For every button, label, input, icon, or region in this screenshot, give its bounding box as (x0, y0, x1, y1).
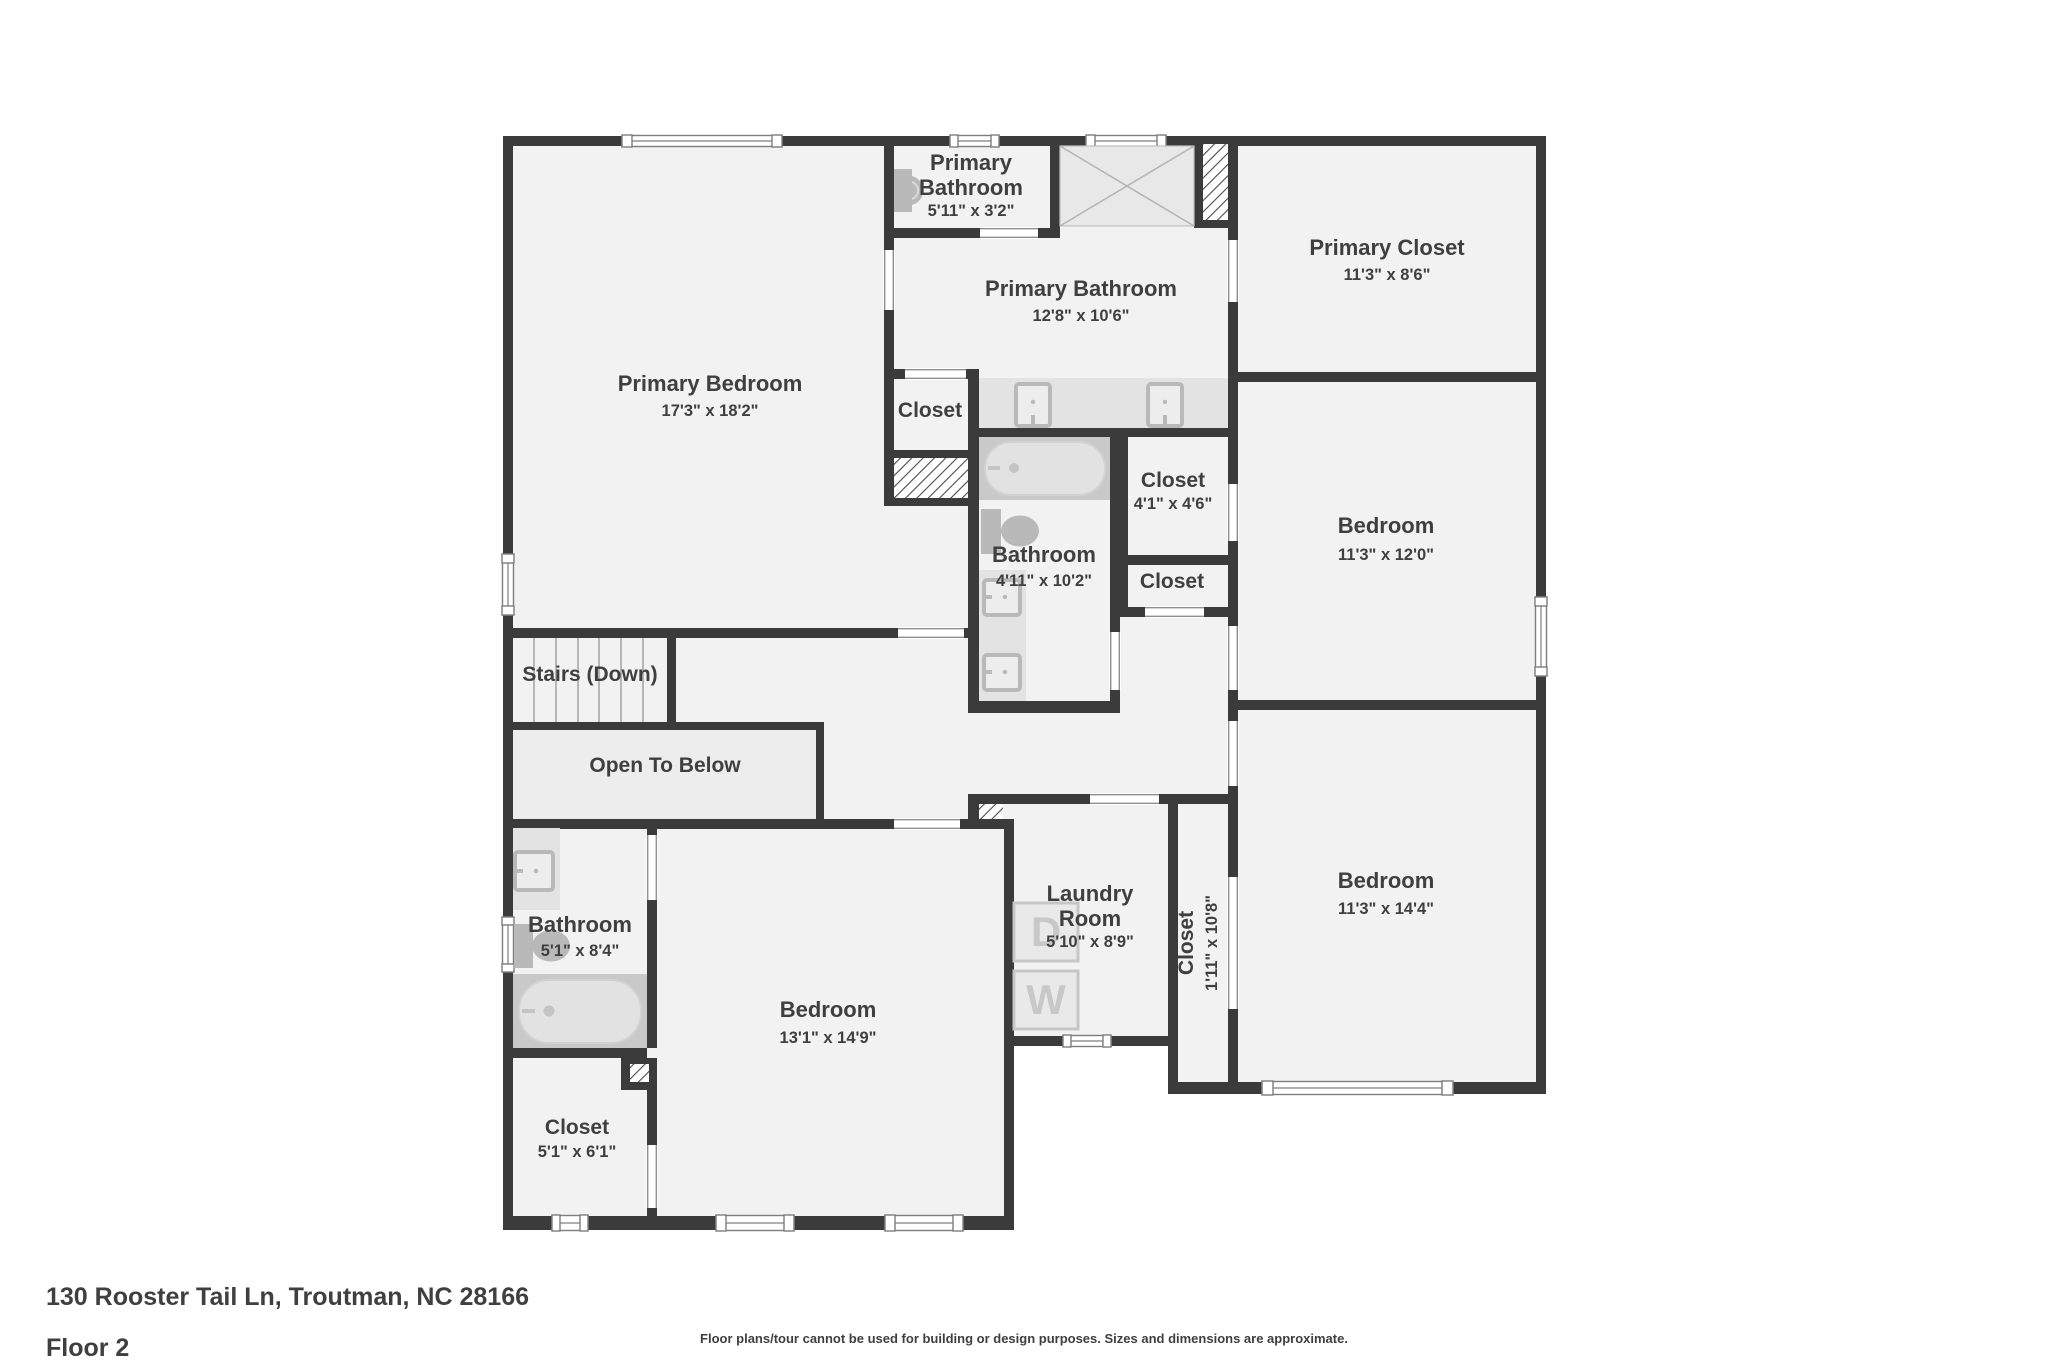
svg-text:Primary Bedroom: Primary Bedroom (618, 371, 803, 396)
svg-text:Room: Room (1059, 906, 1121, 931)
svg-text:12'8" x 10'6": 12'8" x 10'6" (1033, 307, 1130, 325)
svg-text:5'11" x 3'2": 5'11" x 3'2" (928, 202, 1015, 220)
svg-text:Primary: Primary (930, 150, 1013, 175)
svg-text:Bathroom: Bathroom (528, 912, 632, 937)
svg-text:Floor 2: Floor 2 (46, 1334, 129, 1362)
svg-text:1'11" x 10'8": 1'11" x 10'8" (1203, 895, 1221, 991)
svg-text:5'10" x 8'9": 5'10" x 8'9" (1046, 933, 1134, 951)
svg-text:Stairs (Down): Stairs (Down) (522, 663, 657, 686)
svg-text:Closet: Closet (545, 1116, 609, 1139)
svg-text:Closet: Closet (898, 399, 962, 422)
svg-text:Bathroom: Bathroom (992, 542, 1096, 567)
svg-text:4'11" x 10'2": 4'11" x 10'2" (996, 572, 1092, 590)
svg-text:Primary Bathroom: Primary Bathroom (985, 276, 1177, 301)
svg-text:Bedroom: Bedroom (1338, 513, 1435, 538)
svg-text:11'3" x 8'6": 11'3" x 8'6" (1344, 266, 1431, 284)
svg-text:Bedroom: Bedroom (1338, 868, 1435, 893)
svg-text:17'3" x 18'2": 17'3" x 18'2" (662, 402, 759, 420)
svg-text:Closet: Closet (1141, 469, 1205, 492)
svg-text:5'1" x 6'1": 5'1" x 6'1" (538, 1143, 617, 1161)
svg-text:Bathroom: Bathroom (919, 175, 1023, 200)
svg-text:130 Rooster Tail Ln, Troutman,: 130 Rooster Tail Ln, Troutman, NC 28166 (46, 1283, 529, 1311)
svg-text:Closet: Closet (1175, 911, 1198, 975)
svg-text:Primary Closet: Primary Closet (1309, 235, 1465, 260)
svg-text:Laundry: Laundry (1047, 881, 1135, 906)
svg-text:11'3" x 12'0": 11'3" x 12'0" (1338, 546, 1434, 564)
svg-text:Floor plans/tour cannot be use: Floor plans/tour cannot be used for buil… (700, 1331, 1348, 1346)
svg-text:Bedroom: Bedroom (780, 997, 877, 1022)
svg-text:Open To Below: Open To Below (589, 754, 741, 777)
svg-text:Closet: Closet (1140, 570, 1204, 593)
svg-text:W: W (1026, 976, 1066, 1023)
svg-text:13'1" x 14'9": 13'1" x 14'9" (780, 1029, 877, 1047)
svg-text:4'1" x 4'6": 4'1" x 4'6" (1134, 495, 1213, 513)
svg-text:11'3" x 14'4": 11'3" x 14'4" (1338, 900, 1434, 918)
svg-text:5'1" x 8'4": 5'1" x 8'4" (541, 942, 620, 960)
